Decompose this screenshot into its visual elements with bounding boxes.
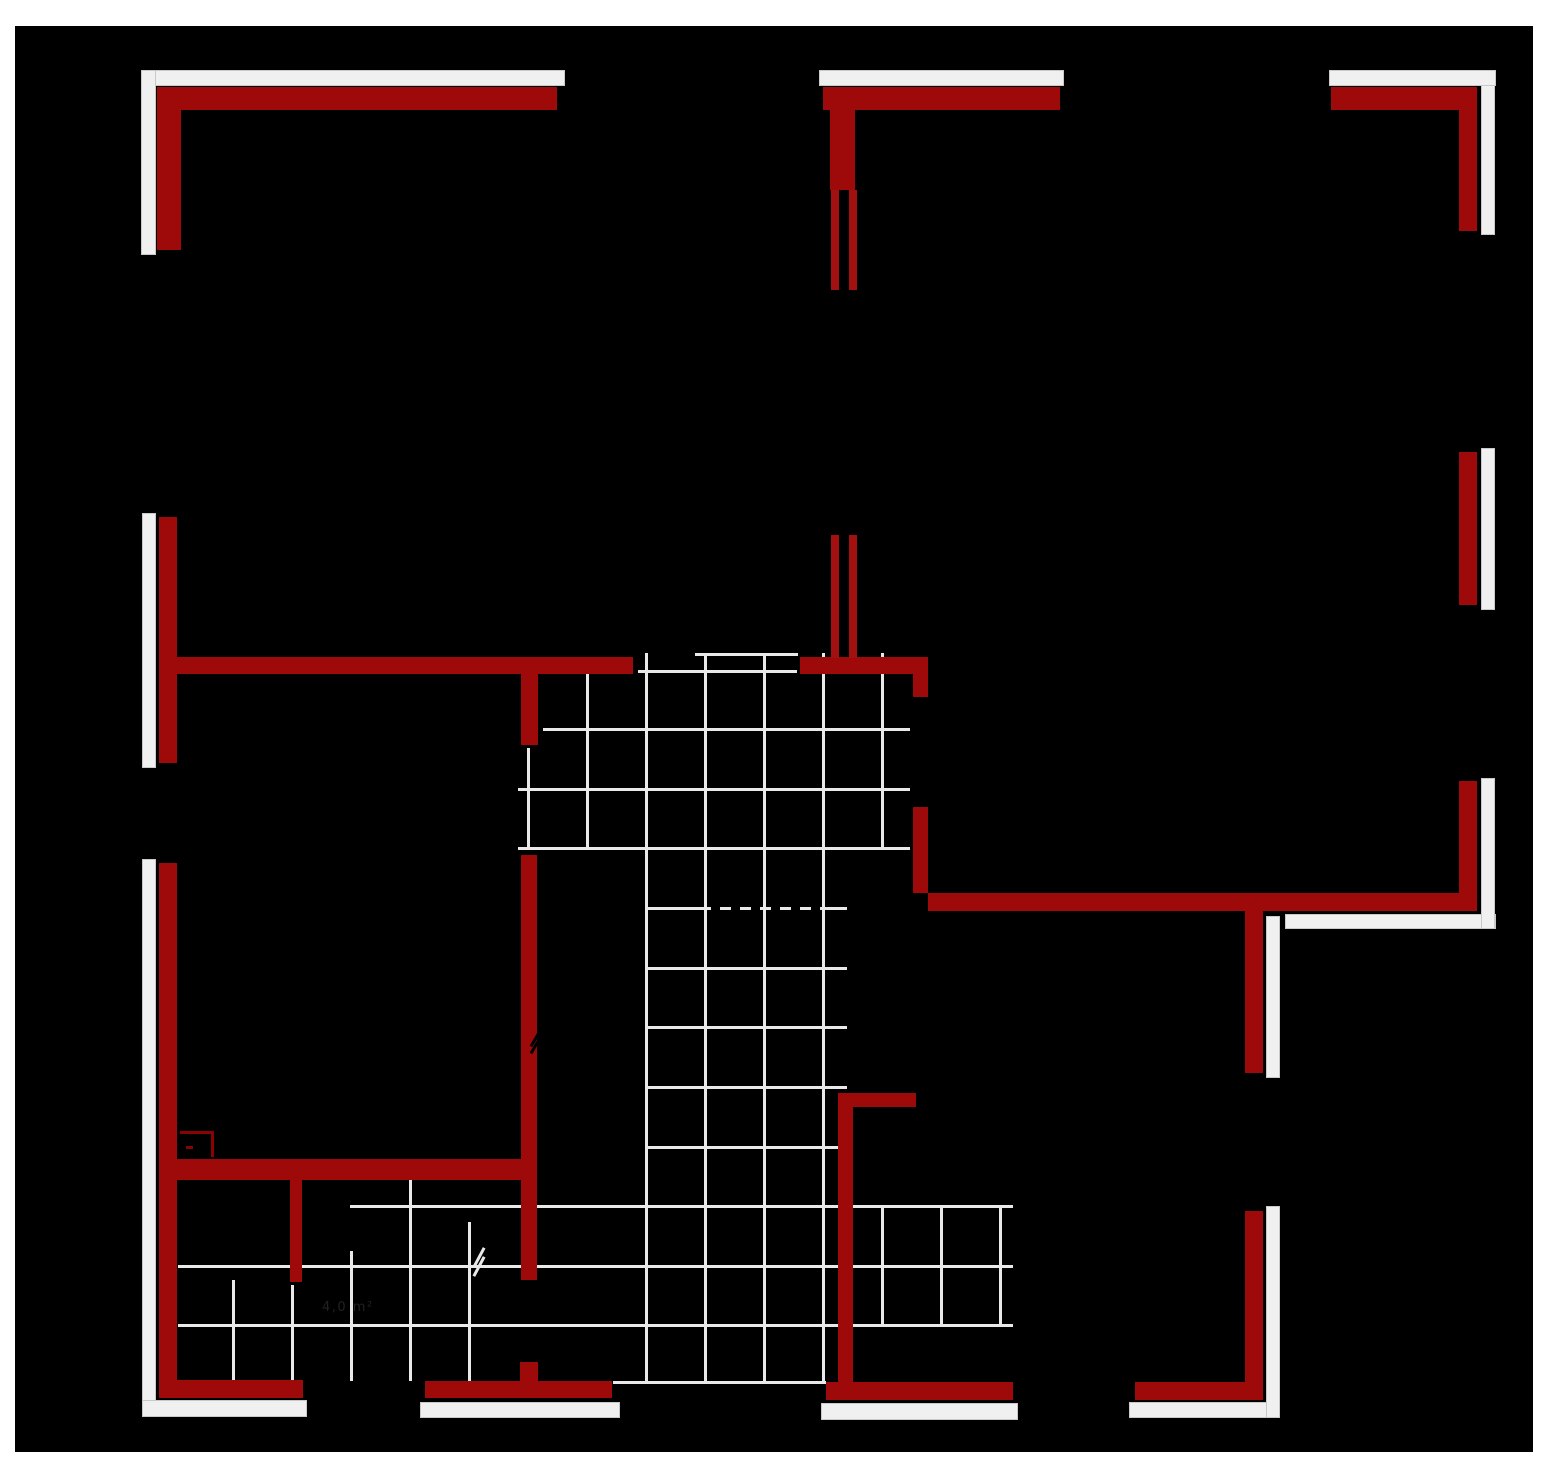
wall-segment: [177, 1159, 527, 1180]
door-fixture-line: [211, 1131, 214, 1157]
wall-segment: [823, 87, 1060, 110]
drawing-background: [15, 26, 1533, 1452]
wall-segment: [1331, 87, 1477, 110]
wall-segment: [838, 1093, 916, 1107]
wall-segment: [913, 807, 928, 893]
exterior-wall-band: [1481, 448, 1495, 610]
tile-grid-hline: [518, 788, 910, 791]
tile-grid-vline: [763, 653, 766, 1381]
wall-segment: [1135, 1382, 1263, 1400]
wall-segment: [838, 1093, 853, 1382]
tile-grid-hline: [178, 1265, 1013, 1268]
tile-grid-hline: [543, 728, 910, 731]
tile-grid-hline: [695, 653, 798, 656]
room-area-label: 4,0 m²: [322, 1300, 374, 1315]
tile-grid-vline: [350, 1251, 353, 1381]
exterior-wall-band: [142, 1400, 307, 1417]
wall-segment: [157, 87, 181, 250]
wall-segment: [1459, 110, 1477, 231]
window-jamb-line: [831, 190, 839, 290]
window-jamb-line: [849, 535, 857, 658]
exterior-wall-band: [141, 70, 565, 86]
tile-grid-hline: [518, 847, 910, 850]
tile-grid-vline: [704, 653, 707, 1381]
exterior-wall-band: [142, 513, 156, 768]
window-jamb-line: [849, 190, 857, 290]
wall-segment: [159, 517, 177, 763]
wall-segment: [290, 1180, 302, 1282]
exterior-wall-band: [142, 859, 156, 1417]
wall-segment: [521, 674, 538, 745]
tile-grid-hline: [645, 967, 847, 970]
exterior-wall-band: [1266, 1206, 1280, 1418]
tile-grid-hline: [830, 907, 847, 910]
exterior-wall-band: [1481, 778, 1495, 929]
wall-segment: [1459, 452, 1477, 605]
tile-grid-vline: [468, 1222, 471, 1381]
tile-grid-vline: [586, 670, 589, 848]
tile-grid-vline: [645, 653, 648, 1381]
exterior-wall-band: [821, 1403, 1018, 1420]
tile-grid-vline: [232, 1280, 235, 1381]
wall-segment: [176, 657, 633, 674]
exterior-wall-band: [1481, 70, 1495, 235]
tile-grid-hline: [645, 1086, 847, 1089]
exterior-wall-band: [1129, 1402, 1280, 1418]
door-fixture-line: [180, 1131, 214, 1134]
tile-grid-vline: [527, 748, 530, 847]
exterior-wall-band: [141, 70, 156, 255]
wall-segment: [826, 1382, 1013, 1400]
floor-plan-canvas: 4,0 m²: [0, 0, 1548, 1478]
wall-segment: [830, 110, 855, 190]
tile-grid-vline: [409, 1172, 412, 1381]
wall-segment: [425, 1381, 612, 1398]
tile-grid-hline: [350, 1205, 1013, 1208]
exterior-wall-band: [819, 70, 1064, 86]
wall-segment: [1245, 911, 1263, 1073]
wall-segment: [159, 1380, 303, 1398]
tile-grid-hline: [178, 1324, 1013, 1327]
exterior-wall-band: [1266, 916, 1280, 1078]
tile-grid-hline: [645, 1146, 847, 1149]
wall-segment: [520, 1362, 538, 1382]
wall-segment: [1245, 1211, 1263, 1400]
wall-segment: [913, 674, 928, 697]
wall-segment: [157, 87, 557, 110]
tile-grid-vline: [881, 653, 884, 848]
tile-grid-hline: [645, 1026, 847, 1029]
tile-grid-vline: [822, 653, 825, 1381]
wall-segment: [159, 863, 177, 1398]
wall-segment: [800, 657, 928, 674]
wall-segment: [928, 893, 1461, 911]
door-fixture-line: [186, 1146, 193, 1149]
tile-grid-hline: [645, 907, 700, 910]
tile-grid-hline: [613, 1381, 826, 1384]
window-jamb-line: [831, 535, 839, 658]
tile-grid-hline: [700, 907, 830, 910]
tile-grid-vline: [291, 1285, 294, 1381]
exterior-wall-band: [420, 1402, 620, 1418]
exterior-wall-band: [1329, 70, 1496, 86]
wall-segment: [521, 855, 537, 1280]
exterior-wall-band: [1285, 914, 1496, 929]
wall-segment: [1459, 781, 1477, 911]
tile-grid-hline: [638, 670, 797, 673]
